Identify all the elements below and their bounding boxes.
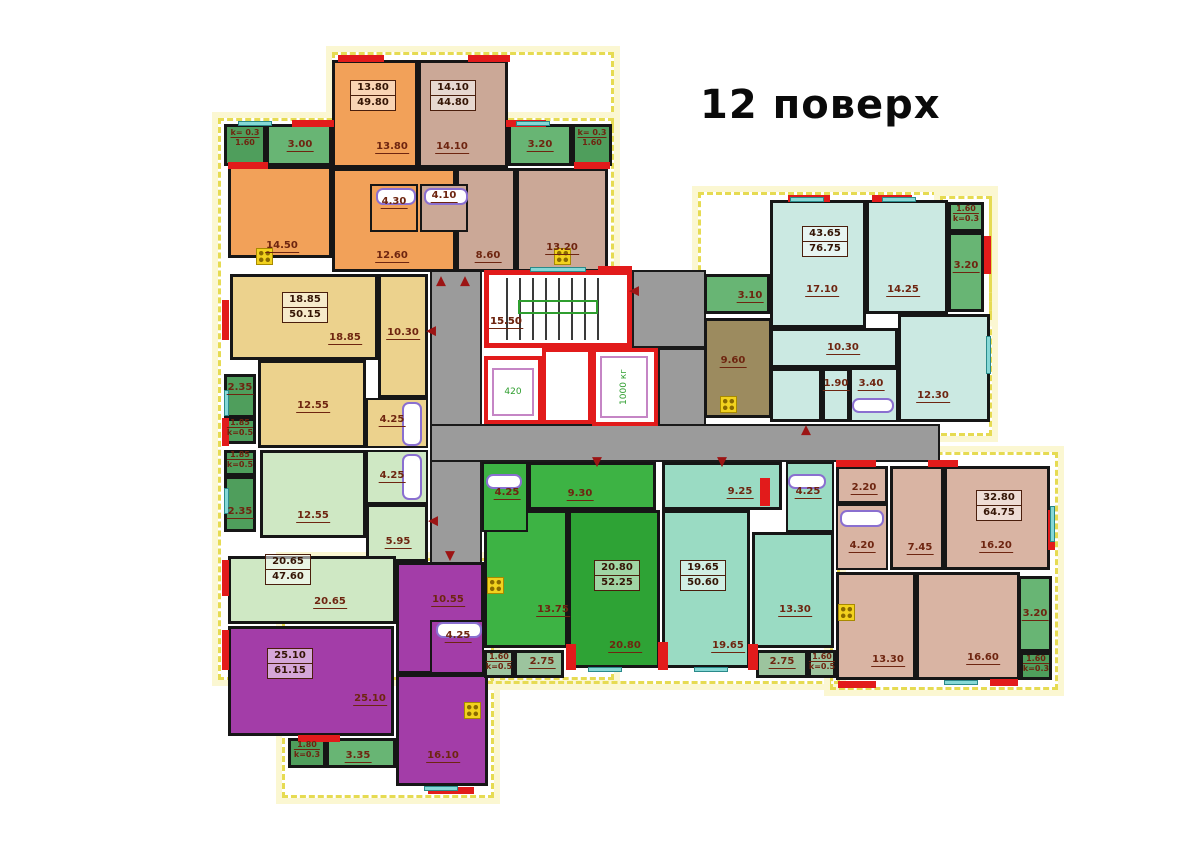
- red-wall-segment-21: [658, 642, 668, 670]
- living-area: 32.80: [977, 491, 1021, 506]
- room-area-label-4-25-17: 4.25: [379, 470, 406, 483]
- room-area-label-9-60-35: 9.60: [720, 355, 747, 368]
- room-area-label-13-30-48: 13.30: [871, 654, 905, 667]
- room-area-label-25-10-20: 25.10: [353, 693, 387, 706]
- room-area-label-13-80-0: 13.80: [375, 141, 409, 154]
- red-wall-segment-14: [984, 236, 991, 274]
- apartment-summary-box-8: 32.8064.75: [976, 490, 1022, 521]
- coef-line1: k= 0.3: [578, 128, 607, 138]
- room-12-30: [898, 314, 990, 422]
- total-area: 47.60: [266, 570, 310, 584]
- stove-icon-2: [464, 702, 481, 719]
- red-wall-segment-19: [990, 679, 1018, 686]
- room-area-label-10-55-21: 10.55: [431, 594, 465, 607]
- room-area-label-2-75-29: 2.75: [529, 656, 556, 669]
- room-area-label-13-30-32: 13.30: [778, 604, 812, 617]
- entrance-arrow-up-0: ▲: [436, 275, 446, 288]
- total-area: 44.80: [431, 96, 475, 110]
- coef-line2: 1.60: [582, 138, 602, 147]
- room-area-label-4-25-13: 4.25: [379, 414, 406, 427]
- room-area-label-3-20-3: 3.20: [527, 139, 554, 152]
- window-8: [944, 680, 978, 685]
- coef-line2: k=0.5: [227, 428, 253, 437]
- entrance-arrow-down-4: ▼: [592, 456, 602, 469]
- living-area: 43.65: [803, 227, 847, 242]
- red-wall-segment-11: [598, 266, 632, 273]
- room-area-label-13-20-7: 13.20: [545, 242, 579, 255]
- red-wall-segment-8: [222, 630, 229, 670]
- coef-line2: k=0.5: [809, 662, 835, 671]
- stove-icon-5: [838, 604, 855, 621]
- machine-room: [542, 348, 592, 424]
- bath-3-40: [850, 368, 898, 422]
- total-area: 61.15: [268, 664, 312, 678]
- room-12-55-green: [260, 450, 366, 538]
- red-wall-segment-20: [566, 644, 576, 670]
- red-wall-segment-2: [292, 120, 334, 127]
- corridor-1: [632, 270, 706, 348]
- window-5: [882, 197, 916, 202]
- floor-plan-canvas: 12 поверх 4201000 кг▲▲▲▼▼▼◀◀◀13.8014.103…: [0, 0, 1200, 849]
- red-wall-segment-5: [574, 162, 610, 169]
- corridor-3: [430, 424, 940, 462]
- window-11: [424, 786, 458, 791]
- total-area: 49.80: [351, 96, 395, 110]
- hall-filler: [770, 368, 822, 422]
- window-4: [790, 197, 824, 202]
- room-area-label-18-85-10: 18.85: [328, 332, 362, 345]
- entrance-arrow-up-2: ▲: [801, 424, 811, 437]
- window-7: [1050, 506, 1055, 542]
- coef-line1: 1.60: [953, 204, 979, 214]
- room-area-label-4-20-45: 4.20: [849, 540, 876, 553]
- total-area: 50.15: [283, 308, 327, 322]
- living-area: 18.85: [283, 293, 327, 308]
- red-wall-segment-23: [760, 478, 770, 506]
- entrance-arrow-left-6: ◀: [426, 325, 436, 338]
- apartment-summary-box-0: 13.8049.80: [350, 80, 396, 111]
- room-area-label-3-00-2: 3.00: [287, 139, 314, 152]
- coef-line1: 1.85: [227, 450, 253, 460]
- room-16-10: [396, 674, 488, 786]
- room-area-label-20-65-19: 20.65: [313, 596, 347, 609]
- coef-line2: k=0.3: [953, 214, 979, 223]
- balcony-coef-label-5: 1.60k=0.5: [486, 652, 512, 671]
- room-area-label-9-30-26: 9.30: [567, 488, 594, 501]
- elevator-small-label: 420: [504, 387, 521, 397]
- red-wall-segment-22: [748, 644, 758, 670]
- coef-line2: k=0.3: [294, 750, 320, 759]
- apartment-summary-box-2: 18.8550.15: [282, 292, 328, 323]
- apartment-summary-box-5: 20.8052.25: [594, 560, 640, 591]
- window-0: [238, 121, 272, 126]
- room-13-30-teal: [752, 532, 834, 648]
- bathtub-icon-6: [852, 398, 894, 413]
- room-area-label-1-90-40: 1.90: [823, 378, 850, 391]
- room-area-label-3-20-43: 3.20: [953, 260, 980, 273]
- room-area-label-9-25-30: 9.25: [727, 486, 754, 499]
- window-9: [588, 667, 622, 672]
- corridor-2: [658, 348, 706, 426]
- coef-line2: k=0.3: [1023, 664, 1049, 673]
- room-area-label-19-65-31: 19.65: [711, 640, 745, 653]
- apartment-summary-box-6: 19.6550.60: [680, 560, 726, 591]
- balcony-coef-label-4: 1.80k=0.3: [294, 740, 320, 759]
- balcony-coef-label-3: 1.85k=0.5: [227, 450, 253, 469]
- coef-line1: 1.80: [294, 740, 320, 750]
- room-area-label-12-55-12: 12.55: [296, 400, 330, 413]
- window-10: [694, 667, 728, 672]
- room-area-label-4-25-33: 4.25: [795, 486, 822, 499]
- total-area: 52.25: [595, 576, 639, 590]
- room-area-label-13-75-27: 13.75: [536, 604, 570, 617]
- balcony-coef-label-6: 1.60k=0.5: [809, 652, 835, 671]
- room-area-label-3-20-50: 3.20: [1022, 608, 1049, 621]
- room-1-90: [822, 368, 850, 422]
- coef-line2: k=0.5: [486, 662, 512, 671]
- entrance-arrow-down-3: ▼: [445, 550, 455, 563]
- living-area: 19.65: [681, 561, 725, 576]
- red-wall-segment-7: [222, 560, 229, 596]
- room-area-label-16-60-49: 16.60: [966, 652, 1000, 665]
- red-wall-segment-16: [928, 460, 958, 467]
- red-wall-segment-1: [468, 55, 510, 62]
- living-area: 14.10: [431, 81, 475, 96]
- room-area-label-5-95-18: 5.95: [385, 536, 412, 549]
- room-area-label-14-10-1: 14.10: [435, 141, 469, 154]
- room-area-label-20-80-28: 20.80: [608, 640, 642, 653]
- room-area-label-10-30-39: 10.30: [826, 342, 860, 355]
- balcony-coef-label-8: 1.60k=0.3: [1023, 654, 1049, 673]
- room-area-label-12-60-5: 12.60: [375, 250, 409, 263]
- apartment-summary-box-1: 14.1044.80: [430, 80, 476, 111]
- room-area-label-17-10-37: 17.10: [805, 284, 839, 297]
- living-area: 13.80: [351, 81, 395, 96]
- apartment-summary-box-7: 43.6576.75: [802, 226, 848, 257]
- red-wall-segment-4: [228, 162, 268, 169]
- room-17-10: [770, 200, 866, 328]
- red-wall-segment-0: [338, 55, 384, 62]
- room-20-65: [228, 556, 396, 624]
- room-area-label-14-50-4: 14.50: [265, 240, 299, 253]
- red-wall-segment-15: [836, 460, 876, 467]
- room-area-label-2-35-14: 2.35: [227, 382, 254, 395]
- bathtub-icon-5: [840, 510, 884, 527]
- stairwell-area-label: 15.50: [489, 316, 523, 329]
- room-area-label-2-20-44: 2.20: [851, 482, 878, 495]
- living-area: 20.65: [266, 555, 310, 570]
- entrance-arrow-left-8: ◀: [629, 285, 639, 298]
- room-area-label-16-20-47: 16.20: [979, 540, 1013, 553]
- room-area-label-4-30-8: 4.30: [381, 196, 408, 209]
- red-wall-segment-18: [838, 681, 876, 688]
- room-area-label-10-30-11: 10.30: [386, 327, 420, 340]
- room-area-label-16-10-23: 16.10: [426, 750, 460, 763]
- balcony-coef-label-1: k= 0.31.60: [578, 128, 607, 147]
- floor-plan: 4201000 кг▲▲▲▼▼▼◀◀◀13.8014.103.003.2014.…: [0, 0, 1200, 849]
- room-area-label-12-55-16: 12.55: [296, 510, 330, 523]
- balcony-coef-label-2: 1.85k=0.5: [227, 418, 253, 437]
- room-area-label-4-25-25: 4.25: [494, 487, 521, 500]
- room-area-label-2-35-15: 2.35: [227, 506, 254, 519]
- entrance-arrow-down-5: ▼: [717, 456, 727, 469]
- total-area: 50.60: [681, 576, 725, 590]
- room-area-label-4-25-22: 4.25: [445, 630, 472, 643]
- room-area-label-2-75-34: 2.75: [769, 656, 796, 669]
- room-9-60: [704, 318, 772, 418]
- window-12: [530, 267, 586, 272]
- coef-line1: 1.60: [486, 652, 512, 662]
- stair-handrail: [518, 300, 598, 314]
- stove-icon-4: [487, 577, 504, 594]
- room-area-label-12-30-42: 12.30: [916, 390, 950, 403]
- entrance-arrow-left-7: ◀: [428, 515, 438, 528]
- coef-line1: k= 0.3: [231, 128, 260, 138]
- balcony-coef-label-0: k= 0.31.60: [231, 128, 260, 147]
- total-area: 64.75: [977, 506, 1021, 520]
- entrance-arrow-up-1: ▲: [460, 275, 470, 288]
- room-area-label-14-25-38: 14.25: [886, 284, 920, 297]
- room-area-label-3-35-24: 3.35: [345, 750, 372, 763]
- red-wall-segment-6: [222, 300, 229, 340]
- room-5-95: [366, 504, 428, 562]
- window-1: [516, 121, 550, 126]
- apartment-summary-box-3: 20.6547.60: [265, 554, 311, 585]
- room-25-10: [228, 626, 394, 736]
- apartment-summary-box-4: 25.1061.15: [267, 648, 313, 679]
- coef-line1: 1.60: [809, 652, 835, 662]
- coef-line1: 1.85: [227, 418, 253, 428]
- elevator-big-label: 1000 кг: [619, 369, 629, 405]
- room-area-label-3-10-36: 3.10: [737, 290, 764, 303]
- living-area: 20.80: [595, 561, 639, 576]
- living-area: 25.10: [268, 649, 312, 664]
- stove-icon-3: [720, 396, 737, 413]
- room-area-label-8-60-6: 8.60: [475, 250, 502, 263]
- coef-line1: 1.60: [1023, 654, 1049, 664]
- coef-line2: 1.60: [235, 138, 255, 147]
- room-area-label-3-40-41: 3.40: [858, 378, 885, 391]
- room-area-label-4-10-9: 4.10: [431, 190, 458, 203]
- window-6: [986, 336, 991, 374]
- total-area: 76.75: [803, 242, 847, 256]
- coef-line2: k=0.5: [227, 460, 253, 469]
- balcony-coef-label-7: 1.60k=0.3: [953, 204, 979, 223]
- room-area-label-7-45-46: 7.45: [907, 542, 934, 555]
